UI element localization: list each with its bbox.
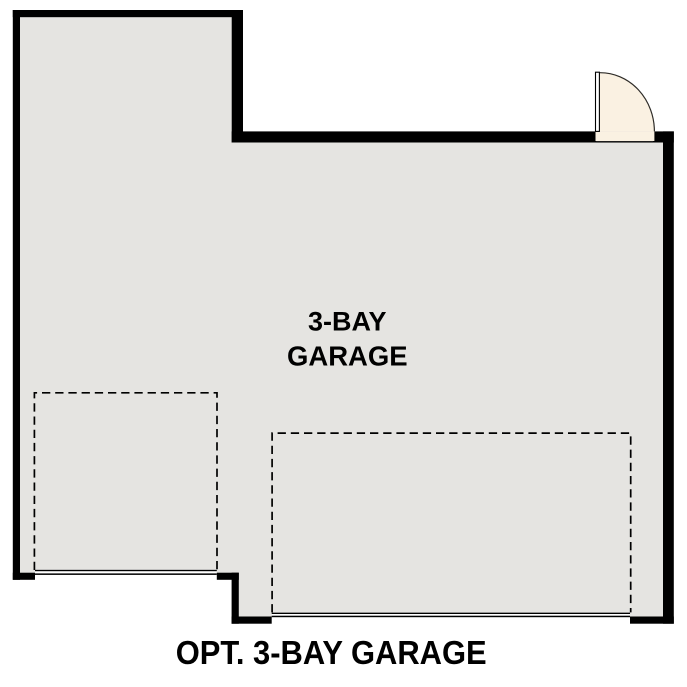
svg-text:GARAGE: GARAGE [287,341,408,372]
svg-text:OPT. 3-BAY GARAGE: OPT. 3-BAY GARAGE [176,634,487,671]
svg-text:3-BAY: 3-BAY [308,307,387,337]
